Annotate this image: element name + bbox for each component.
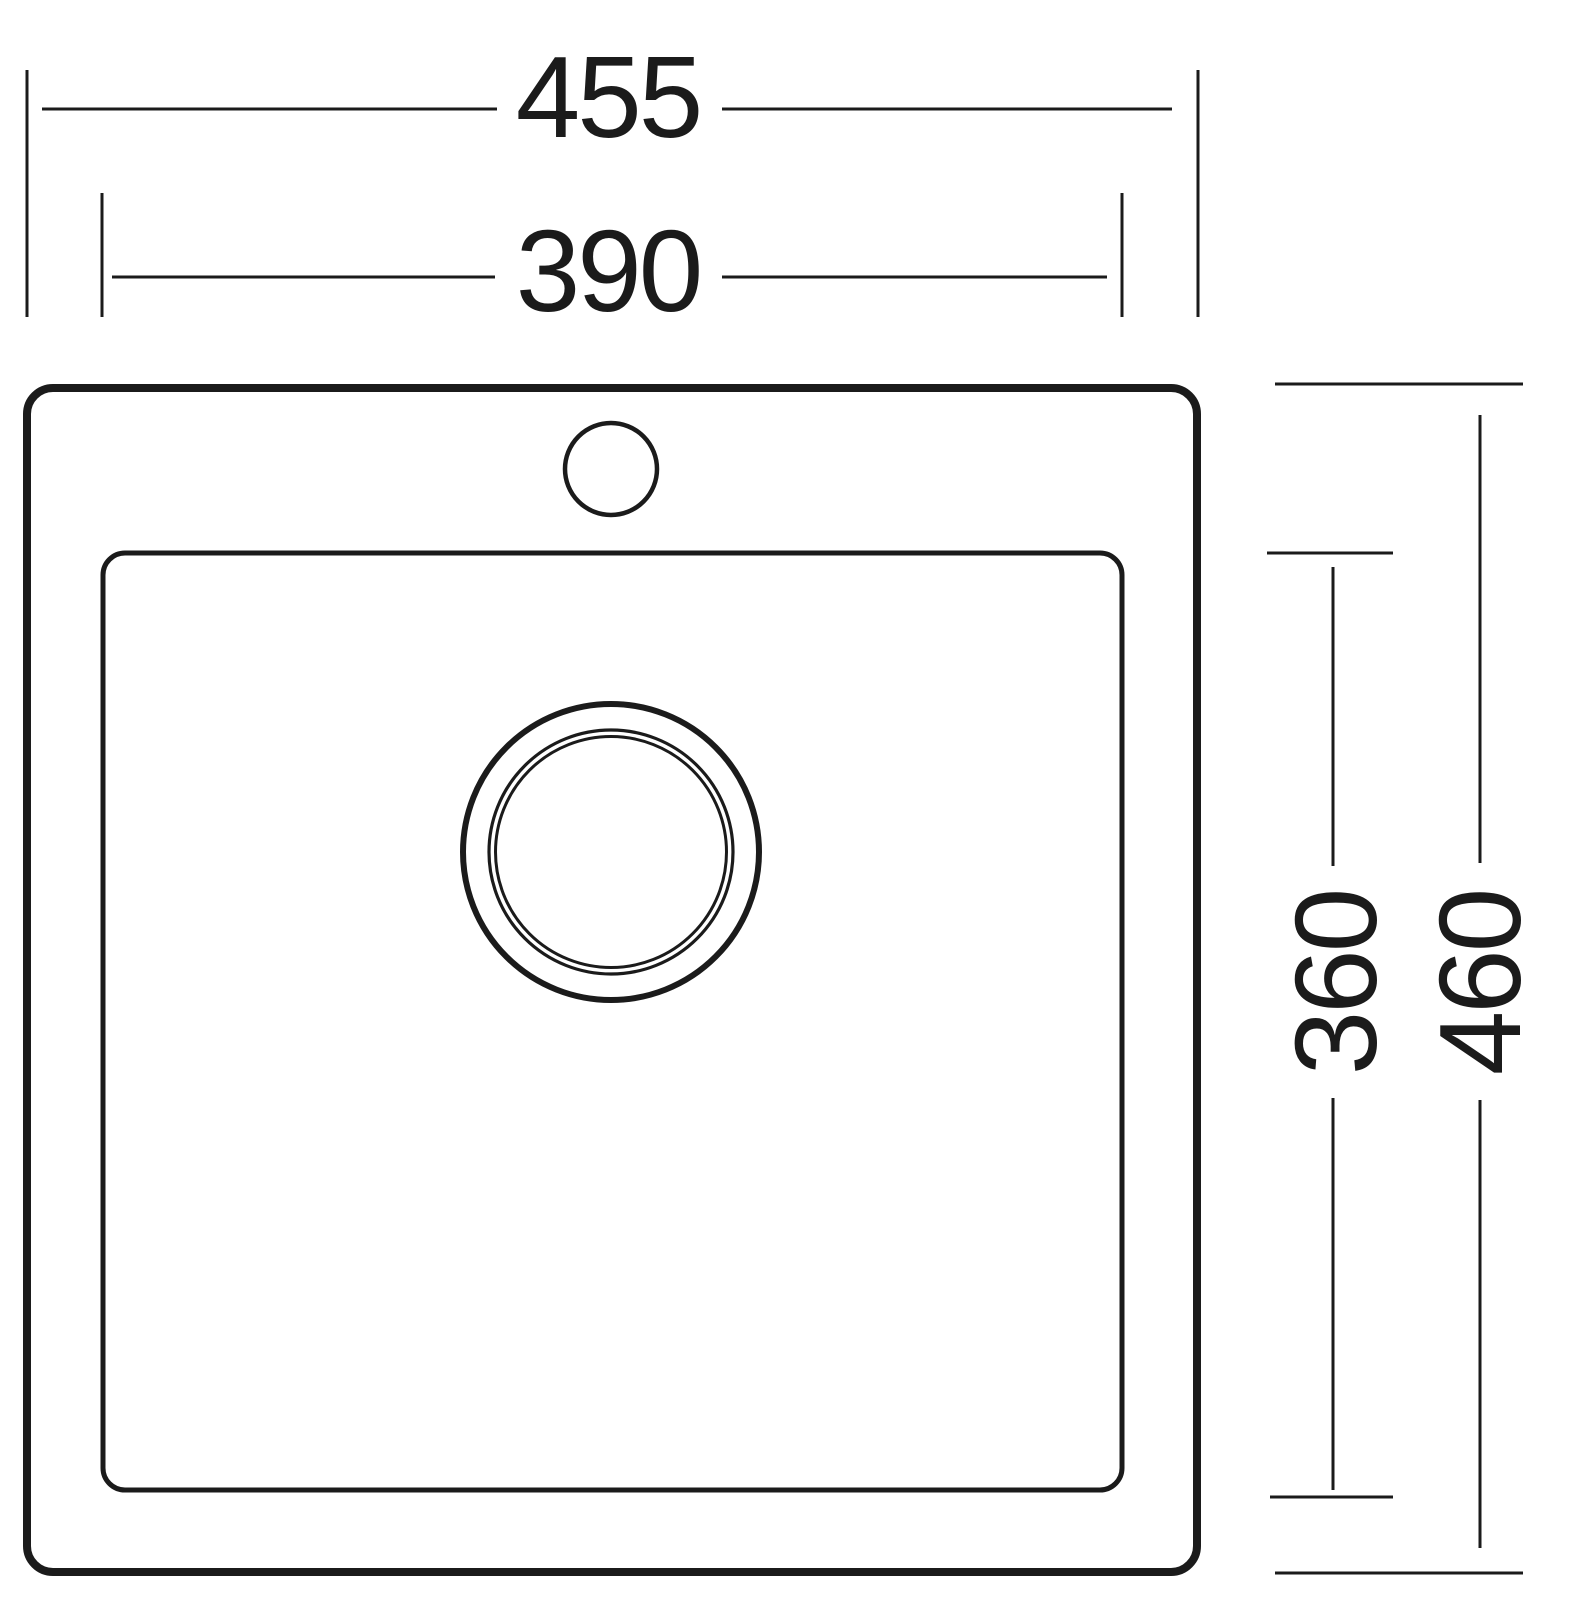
- drain-ring-outer: [489, 730, 733, 974]
- drain-ring-inner: [496, 737, 727, 968]
- dim-label-basin-depth: 360: [1271, 891, 1401, 1076]
- sink-outline: [27, 388, 1197, 1572]
- faucet-hole: [565, 423, 657, 515]
- sink-top-view-drawing: 455 390 360 460: [0, 0, 1574, 1600]
- dim-label-basin-width: 390: [516, 206, 701, 336]
- sink-outer-edge: [27, 388, 1197, 1572]
- drain-outer-circle: [463, 704, 759, 1000]
- drain: [463, 704, 759, 1000]
- drawing-canvas: 455 390 360 460: [0, 0, 1574, 1600]
- basin-edge: [103, 553, 1122, 1490]
- dim-label-overall-width: 455: [516, 32, 701, 162]
- dim-label-overall-depth: 460: [1415, 891, 1545, 1076]
